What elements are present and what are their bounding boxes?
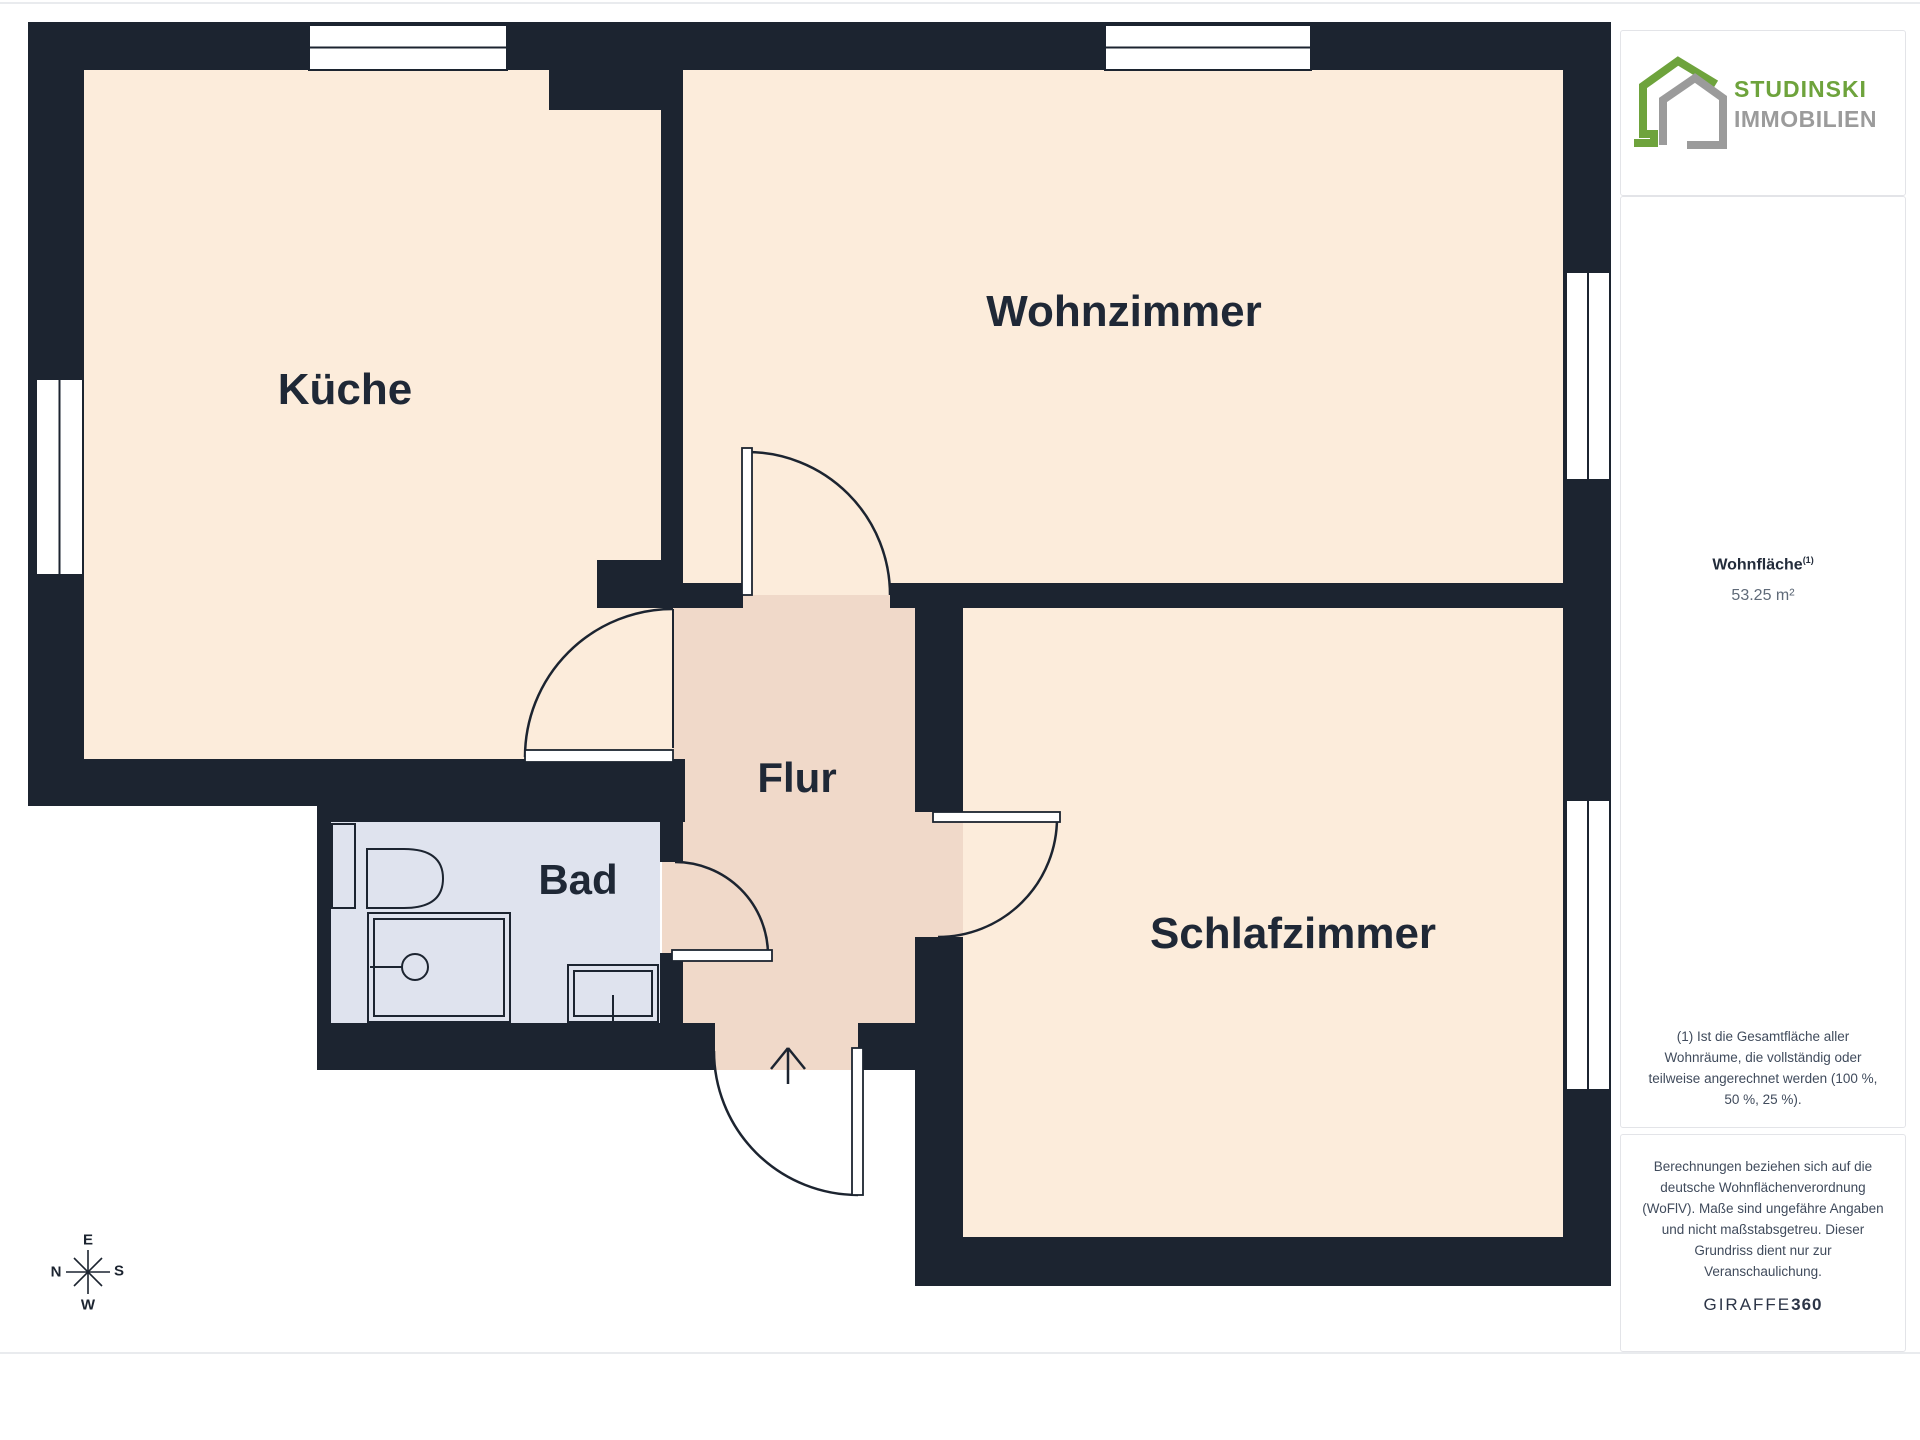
toilet-icon — [332, 824, 443, 908]
area-label-text: Wohnfläche — [1712, 556, 1802, 573]
label-schlafzimmer: Schlafzimmer — [1150, 909, 1436, 959]
door-wohnzimmer — [742, 448, 890, 595]
label-bad: Bad — [538, 856, 617, 904]
window-schlafzimmer-right — [1566, 800, 1610, 1090]
door-schlafzimmer — [933, 812, 1060, 937]
floor-plan: Küche Wohnzimmer Schlafzimmer Flur Bad E… — [0, 0, 1640, 1440]
studinski-logo-icon — [1628, 52, 1732, 150]
giraffe360-logo: GIRAFFE360 — [1621, 1295, 1905, 1315]
compass-star-icon — [66, 1250, 110, 1294]
giraffe360-logo-suffix: 360 — [1791, 1295, 1822, 1314]
area-value: 53.25 m² — [1621, 587, 1905, 605]
compass-letter-bottom: W — [81, 1297, 95, 1314]
area-label-sup: (1) — [1803, 555, 1814, 565]
logo-text-line1: STUDINSKI — [1734, 76, 1867, 103]
label-flur: Flur — [757, 754, 836, 802]
giraffe360-logo-name: GIRAFFE — [1703, 1295, 1791, 1314]
disclaimer-text: Berechnungen beziehen sich auf die deuts… — [1641, 1157, 1885, 1283]
door-bad — [672, 862, 772, 961]
compass-letter-left: N — [51, 1264, 62, 1281]
compass-letter-right: S — [114, 1263, 124, 1280]
label-wohnzimmer: Wohnzimmer — [986, 287, 1261, 337]
area-footnote: (1) Ist die Gesamtfläche aller Wohnräume… — [1641, 1027, 1885, 1111]
label-kueche: Küche — [278, 365, 412, 415]
sink-icon — [568, 965, 658, 1022]
door-kueche — [525, 609, 673, 762]
sidebar-main-box: Wohnfläche(1) 53.25 m² (1) Ist die Gesam… — [1620, 196, 1906, 1128]
window-wohnzimmer-top — [1105, 25, 1311, 70]
window-wohnzimmer-right — [1566, 272, 1610, 480]
logo-text-line2: IMMOBILIEN — [1734, 106, 1877, 133]
sidebar-disclaimer-box: Berechnungen beziehen sich auf die deuts… — [1620, 1134, 1906, 1352]
window-kueche-left — [36, 379, 83, 575]
window-kueche-top — [309, 25, 507, 70]
compass-letter-top: E — [83, 1232, 93, 1249]
area-label: Wohnfläche(1) — [1621, 555, 1905, 574]
shower-icon — [368, 913, 510, 1022]
entrance-arrow-icon — [771, 1048, 805, 1084]
